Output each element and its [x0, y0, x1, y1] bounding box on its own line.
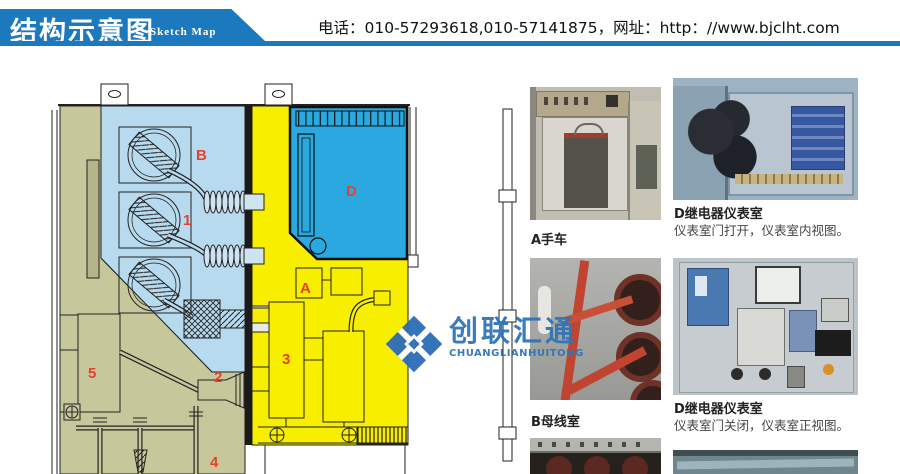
caption-photo-a: A手车	[531, 229, 567, 248]
photo-detail	[695, 276, 707, 296]
photo-detail	[789, 310, 817, 352]
photo-detail	[687, 98, 767, 182]
photo-a-handcart	[530, 87, 661, 220]
diagram-label-4: 4	[210, 455, 218, 470]
caption-photo-d-closed-sub: 仪表室门关闭，仪表室正视图。	[674, 415, 849, 434]
photo-detail	[823, 364, 834, 375]
photo-detail	[606, 95, 618, 107]
catalog-page: 结构示意图 Sketch Map 电话：010-57293618,010-571…	[0, 0, 900, 474]
photo-detail	[737, 308, 785, 366]
diagram-label-5: 5	[88, 366, 96, 381]
diagram-label-A: A	[300, 281, 311, 296]
diagram-label-D: D	[346, 184, 357, 199]
photo-detail	[759, 368, 771, 380]
photo-detail	[821, 298, 849, 322]
watermark-cn: 创联汇通	[449, 316, 584, 348]
company-logo-icon	[386, 316, 442, 372]
photo-d-instrument-open	[673, 78, 858, 200]
rear-frame	[408, 107, 516, 461]
page-subtitle: Sketch Map	[150, 26, 217, 38]
photo-detail	[673, 450, 858, 456]
photo-bottom-right-partial	[673, 450, 858, 474]
header-banner: 结构示意图 Sketch Map	[0, 9, 266, 42]
watermark: 创联汇通 CHUANGLIANHUITONG	[386, 316, 584, 372]
photo-detail	[630, 380, 661, 400]
lifting-lug-icon	[101, 84, 128, 105]
photo-detail	[636, 145, 657, 189]
photo-detail	[544, 97, 592, 105]
partition-wall	[245, 106, 252, 445]
photo-detail	[538, 442, 648, 447]
photo-detail	[622, 456, 648, 474]
lifting-lug-icon	[265, 84, 292, 105]
diagram-label-B: B	[196, 148, 207, 163]
diagram-label-1: 1	[183, 213, 191, 228]
photo-detail	[815, 330, 851, 356]
photo-detail	[564, 133, 608, 208]
photo-detail	[735, 174, 843, 184]
photo-detail	[574, 123, 604, 135]
diagram-label-3: 3	[282, 352, 290, 367]
header-rule	[0, 41, 900, 46]
photo-detail	[687, 268, 729, 326]
watermark-en: CHUANGLIANHUITONG	[449, 348, 584, 359]
photo-detail	[731, 368, 743, 380]
photo-detail	[791, 106, 845, 170]
photo-detail	[755, 266, 801, 304]
switchgear-cross-section	[38, 58, 520, 474]
photo-detail	[546, 456, 572, 474]
caption-photo-b: B母线室	[531, 411, 580, 430]
photo-detail	[787, 366, 805, 388]
diagram-label-2: 2	[214, 370, 222, 385]
photo-d-instrument-closed	[673, 258, 858, 395]
photo-detail	[584, 456, 610, 474]
photo-bottom-left-partial	[530, 438, 661, 474]
caption-photo-d-open-sub: 仪表室门打开，仪表室内视图。	[674, 220, 849, 239]
contact-info: 电话：010-57293618,010-57141875，网址：http：//w…	[318, 16, 840, 38]
photo-detail	[677, 458, 854, 469]
